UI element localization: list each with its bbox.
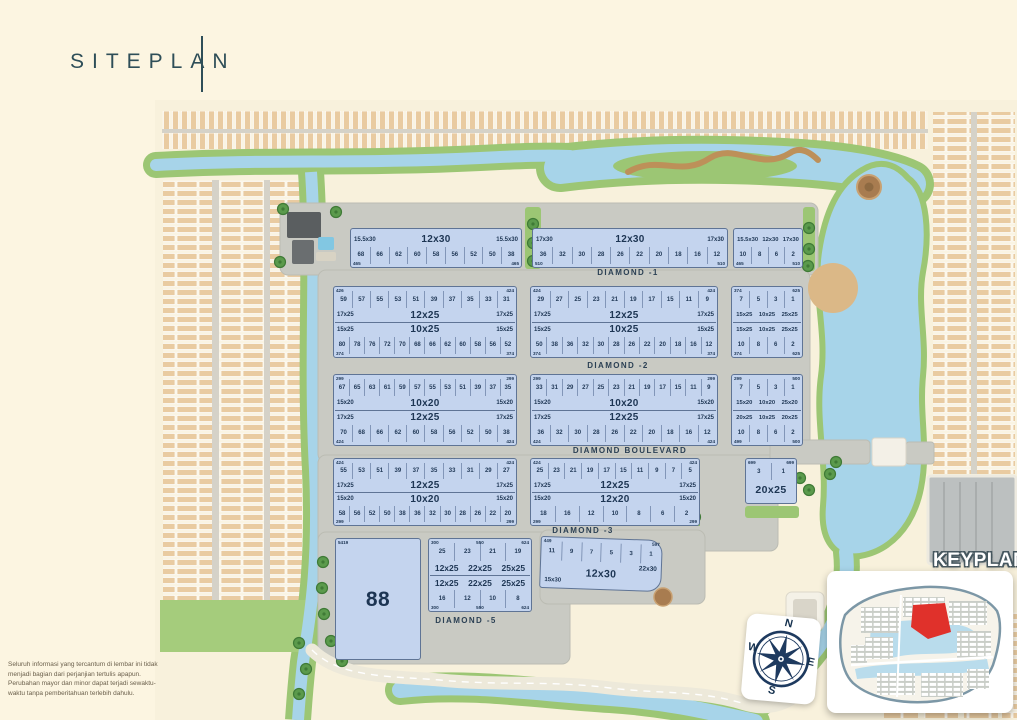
lot-size-label: 12x25 [600,480,629,491]
lot-number: 31 [546,379,561,396]
lot-number: 51 [455,379,470,396]
lot-block-b2: 17x3012x3017x303632302826222018161251051… [532,228,728,268]
block-measure: 424 [336,439,344,444]
lot-row: 17x2512x2517x25 [532,479,698,492]
lot-number: 62 [440,337,455,354]
block-measure: 510 [535,261,543,266]
lot-number: 25 [593,379,608,396]
lot-number: 52 [464,247,483,264]
lot-row: 15x2510x2525x25 [733,322,801,337]
lot-row: 15x2010x2025x20 [733,396,801,410]
lot-number: 3 [620,544,640,564]
lot-number: 9 [561,542,581,562]
lot-number: 66 [370,247,389,264]
lot-number: 11 [685,379,700,396]
lot-size-label: 88 [366,588,390,612]
lot-number: 7 [733,291,749,308]
lot-number: 72 [379,337,394,354]
lake [817,164,926,556]
green-strip [745,506,799,518]
block-measure: 424 [533,288,541,293]
lot-number: 1 [640,544,660,564]
lot-block-b10: 5553513937353331292717x2512x2517x2515x20… [333,458,517,526]
block-measure: 299 [336,519,344,524]
lot-number: 25 [532,463,548,479]
lot-number: 29 [562,379,577,396]
lot-number: 26 [470,506,485,522]
lot-row: 36323028262220181612 [534,247,726,264]
lot-number: 35 [424,463,442,479]
block-measure: 374 [734,288,742,293]
lot-size-label: 12x25 [435,578,459,588]
lot-size-label: 15x25 [736,312,752,318]
lot-number: 18 [670,337,685,354]
lot-size-label: 15x20 [496,496,513,502]
lot-number: 19 [581,463,598,479]
lot-number: 56 [445,247,464,264]
lot-size-label: 17x30 [536,237,553,243]
lot-number: 3 [747,463,771,480]
lot-row: 18161210862 [532,506,698,522]
lot-row: 12x2522x2525x25 [430,575,530,590]
lot-number: 22 [639,337,654,354]
road [264,180,270,618]
lot-number: 19 [505,543,530,561]
title-divider [201,36,203,92]
lot-number: 8 [751,247,768,264]
lot-number: 31 [497,291,515,308]
road-label-diamond-5: DIAMOND -5 [435,616,497,625]
lot-row: 31 [747,463,795,480]
lot-size-label: 15x20 [679,496,696,502]
block-measure: 374 [533,351,541,356]
lot-number: 5 [749,379,766,396]
lot-number: 5 [601,543,621,563]
block-measure: 550 [476,540,484,545]
block-measure: 374 [506,351,514,356]
lot-row: 17x2512x2517x25 [335,479,515,492]
road-label-diamond-boulevard: DIAMOND BOULEVARD [573,446,687,455]
lot-size-label: 12x25 [410,480,439,491]
lot-number: 12 [579,506,603,522]
lot-number: 37 [406,463,424,479]
housing-left-col [163,180,212,618]
block-measure: 465 [736,261,744,266]
lot-number: 6 [768,247,785,264]
lot-number: 66 [424,337,439,354]
lot-row: 17x2512x2517x25 [335,410,515,425]
lot-number: 33 [479,291,497,308]
lot-number: 22 [624,425,643,442]
lot-size-label: 20x25 [736,415,752,421]
lot-size-label: 17x30 [783,237,799,243]
lot-size-label: 17x25 [697,312,714,318]
lot-row: 15x3012x3022x30 [541,560,660,588]
lot-number: 7 [733,379,749,396]
lot-size-label: 15.5x30 [354,237,376,243]
lot-row: 20x2510x2520x25 [733,410,801,425]
lot-row: 25232119171511975 [532,463,698,479]
lot-number: 18 [668,247,687,264]
block-measure: 299 [336,376,344,381]
lot-size-label: 10x20 [410,398,439,409]
lot-number: 17 [598,463,615,479]
lot-size-label: 15x20 [534,400,551,406]
lot-size-label: 15x20 [534,496,551,502]
lot-size-label: 15x20 [697,400,714,406]
housing-right-col [933,112,971,474]
lot-number: 22 [485,506,500,522]
lot-size-label: 12x25 [435,563,459,573]
page-title: SITEPLAN [70,50,236,74]
block-measure: 500 [792,376,800,381]
lot-row: 17x3012x3017x30 [534,233,726,247]
lot-row: 25232119 [430,543,530,561]
siteplan-page: 15.5x3012x3015.5x30686662605856525038465… [0,0,1017,720]
lot-number: 15 [670,379,685,396]
block-measure: 299 [533,519,541,524]
road-label-diamond-3: DIAMOND -3 [552,526,614,535]
lot-row: 15x2012x2015x20 [532,492,698,506]
keyplan-minimap [833,577,1007,707]
lot-number: 9 [648,463,665,479]
lot-size-label: 15x30 [541,577,563,585]
lot-row: 17x2512x2517x25 [532,410,716,425]
lot-number: 60 [406,425,424,442]
lot-number: 68 [352,425,370,442]
lot-number: 29 [532,291,550,308]
block-measure: 426 [336,288,344,293]
lot-number: 55 [335,463,352,479]
lot-number: 37 [443,291,461,308]
lot-number: 28 [608,337,623,354]
housing-left-col [219,180,264,618]
compass-rose: N E S W [735,608,828,709]
lot-row: 7531 [733,291,801,308]
lot-block-b15: 119753115x3012x3022x30449597 [539,536,663,592]
block-measure: 699 [786,460,794,465]
lot-row: 15x2010x2015x20 [532,396,716,410]
lot-number: 32 [550,425,569,442]
lot-size-label: 25x25 [782,327,798,333]
lot-number: 50 [379,506,394,522]
lot-size-label: 10x20 [759,400,775,406]
lot-number: 27 [577,379,592,396]
lot-block-b9: 753115x2010x2025x2020x2510x2520x25108622… [731,374,803,446]
lot-size-label: 10x20 [410,494,439,505]
lot-size-label: 10x25 [609,324,638,335]
lot-number: 10 [603,506,627,522]
block-measure: 299 [506,519,514,524]
lot-number: 32 [552,247,571,264]
compass-east-label: E [806,656,816,669]
block-measure: 424 [506,460,514,465]
lot-number: 25 [568,291,587,308]
lot-row: 807876727068666260585652 [335,337,515,354]
lot-size-label: 10x25 [410,324,439,335]
block-measure: 424 [707,439,715,444]
lot-number: 31 [461,463,479,479]
lot-number: 68 [409,337,424,354]
lot-size-label: 17x30 [707,237,724,243]
lot-number: 16 [685,337,700,354]
lot-number: 16 [679,425,698,442]
lot-number: 3 [767,379,784,396]
block-measure: 300 [431,540,439,545]
lot-size-label: 10x25 [759,415,775,421]
block-measure: 424 [506,288,514,293]
lot-number: 57 [352,291,370,308]
lot-number: 23 [608,379,623,396]
lot-row: 15x2510x2515x25 [532,322,716,337]
lot-number: 51 [370,463,388,479]
lot-number: 56 [443,425,461,442]
lot-number: 53 [352,463,370,479]
lot-size-label: 15x20 [496,400,513,406]
block-measure: 424 [707,288,715,293]
lot-size-label: 15x25 [337,327,354,333]
lot-number: 5 [749,291,766,308]
block-measure: 299 [533,376,541,381]
lot-number: 35 [500,379,515,396]
lot-number: 25 [430,543,454,561]
lot-size-label: 20x25 [755,484,786,496]
lot-number: 7 [665,463,682,479]
lot-row: 15x2510x2515x25 [335,322,515,337]
road [212,180,219,618]
lot-number: 58 [470,337,485,354]
lot-number: 29 [479,463,497,479]
brown-circle [654,588,672,606]
lot-row: 70686662605856525038 [335,425,515,442]
lot-number: 27 [550,291,569,308]
lot-row: 15.5x3012x3017x30 [735,233,801,247]
lot-row: 10862 [735,247,801,264]
lot-number: 26 [624,337,639,354]
lot-size-label: 15.5x30 [496,237,518,243]
lot-block-b13: 885419 [335,538,421,660]
lot-number: 65 [349,379,364,396]
lot-size-label: 20x25 [782,415,798,421]
lot-number: 36 [409,506,424,522]
lot-number: 15 [661,291,680,308]
lot-number: 38 [394,506,409,522]
lot-number: 33 [532,379,546,396]
lot-block-b1: 15.5x3012x3015.5x30686662605856525038465… [350,228,522,268]
lot-number: 56 [485,337,500,354]
lot-number: 11 [542,541,561,561]
lot-number: 20 [642,425,661,442]
block-measure: 299 [506,376,514,381]
road [162,129,928,133]
lot-size-label: 12x30 [615,234,644,245]
lot-number: 56 [349,506,364,522]
bridge [872,438,906,466]
lot-number: 3 [767,291,784,308]
block-measure: 299 [707,376,715,381]
lot-number: 50 [479,425,497,442]
lot-number: 11 [679,291,698,308]
lot-number: 6 [767,337,784,354]
lot-number: 55 [370,291,388,308]
lot-size-label: 17x25 [496,415,513,421]
lot-number: 51 [406,291,424,308]
block-measure: 424 [689,460,697,465]
lot-row: 59575553513937353331 [335,291,515,308]
lot-number: 39 [470,379,485,396]
lot-number: 19 [624,291,643,308]
lot-number: 6 [767,425,784,442]
roundabout-center [865,183,874,192]
lot-row: 55535139373533312927 [335,463,515,479]
lot-size-label: 25x25 [782,312,798,318]
lot-number: 30 [572,247,591,264]
lot-number: 22 [629,247,648,264]
lot-size-label: 15x25 [697,327,714,333]
lot-row: 15x2010x2015x20 [335,396,515,410]
lot-row: 10862 [733,337,801,354]
block-measure: 465 [511,261,519,266]
lot-size-label: 12x30 [421,234,450,245]
lot-number: 32 [424,506,439,522]
lot-number: 5 [681,463,698,479]
block-measure: 597 [652,542,660,547]
green-area [160,600,308,652]
block-measure: 510 [717,261,725,266]
block-measure: 374 [734,351,742,356]
block-measure: 299 [734,376,742,381]
lot-size-label: 15x25 [496,327,513,333]
block-measure: 449 [544,538,552,543]
lot-size-label: 25x20 [782,400,798,406]
road [971,112,977,474]
lot-number: 38 [546,337,561,354]
block-measure: 625 [792,288,800,293]
lot-size-label: 12x25 [609,412,638,423]
lot-number: 21 [605,291,624,308]
lot-block-b3: 15.5x3012x3017x3010862465510 [733,228,803,268]
lot-row: 17x2512x2517x25 [335,308,515,322]
lot-row: 7531 [733,379,801,396]
lot-number: 8 [749,425,766,442]
block-measure: 499 [734,439,742,444]
lot-number: 17 [642,291,661,308]
lot-number: 20 [649,247,668,264]
block-measure: 424 [533,439,541,444]
lot-number: 70 [394,337,409,354]
lot-size-label: 25x25 [502,578,526,588]
lot-number: 23 [454,543,479,561]
lot-number: 52 [364,506,379,522]
lot-number: 63 [364,379,379,396]
lot-size-label: 12x25 [410,310,439,321]
lot-number: 37 [485,379,500,396]
block-measure: 299 [689,519,697,524]
compass-card: N E S W [740,613,821,705]
lot-number: 26 [605,425,624,442]
road-label-diamond-1: DIAMOND -1 [597,268,659,277]
lot-number: 8 [626,506,650,522]
lot-size-label: 12x25 [410,412,439,423]
lot-block-b5: 292725232119171511917x2512x2517x2515x251… [530,286,718,358]
lot-size-label: 17x25 [534,483,551,489]
lot-size-label: 15x20 [736,400,752,406]
lot-number: 16 [555,506,579,522]
lot-number: 60 [455,337,470,354]
housing-top-row [162,111,928,129]
lot-number: 39 [424,291,442,308]
lot-row: 15.5x3012x3015.5x30 [352,233,520,247]
lot-row: 503836323028262220181612 [532,337,716,354]
lot-number: 6 [650,506,674,522]
lot-number: 21 [624,379,639,396]
lot-number: 58 [424,425,442,442]
lot-size-label: 17x25 [496,312,513,318]
block-measure: 300 [431,605,439,610]
lot-size-label: 25x25 [502,563,526,573]
block-measure: 500 [792,439,800,444]
lot-size-label: 15x20 [337,496,354,502]
lot-number: 61 [379,379,394,396]
lot-number: 28 [591,247,610,264]
lot-number: 53 [388,291,406,308]
lot-number: 7 [581,542,601,562]
disclaimer-text: Seluruh informasi yang tercantum di lemb… [8,660,160,698]
lot-row: 88 [337,543,419,656]
lot-size-label: 17x25 [679,483,696,489]
lot-number: 39 [388,463,406,479]
lot-size-label: 17x25 [496,483,513,489]
lot-number: 33 [443,463,461,479]
lot-number: 66 [370,425,388,442]
lot-size-label: 17x25 [337,483,354,489]
block-measure: 374 [707,351,715,356]
pool [318,237,334,250]
lot-block-b6: 753115x2510x2525x2515x2510x2525x25108623… [731,286,803,358]
lot-number: 18 [661,425,680,442]
lot-size-label: 10x25 [759,312,775,318]
lot-number: 58 [426,247,445,264]
lot-number: 57 [409,379,424,396]
lot-size-label: 10x25 [759,327,775,333]
lot-row: 686662605856525038 [352,247,520,264]
lot-block-b12: 3120x25699699 [745,458,797,504]
lot-number: 35 [461,291,479,308]
lot-number: 16 [687,247,706,264]
lot-block-b4: 5957555351393735333117x2512x2517x2515x25… [333,286,517,358]
lot-size-label: 12x25 [609,310,638,321]
lot-number: 20 [654,337,669,354]
block-measure: 424 [506,439,514,444]
lot-number: 11 [631,463,648,479]
housing-right-col [977,112,1015,474]
block-measure: 465 [353,261,361,266]
compass-south-label: S [767,684,777,697]
lot-size-label: 17x25 [337,415,354,421]
lot-number: 21 [480,543,505,561]
lot-size-label: 12x30 [563,567,639,582]
lot-size-label: 22x25 [468,578,492,588]
road-label-diamond-2: DIAMOND -2 [587,361,649,370]
lot-number: 19 [639,379,654,396]
lot-row: 585652503836323028262220 [335,506,515,522]
lot-size-label: 12x20 [600,494,629,505]
lot-number: 1 [784,379,801,396]
lot-number: 23 [587,291,606,308]
lot-size-label: 17x25 [534,415,551,421]
block-measure: 699 [748,460,756,465]
beach-semicircle [808,263,858,313]
